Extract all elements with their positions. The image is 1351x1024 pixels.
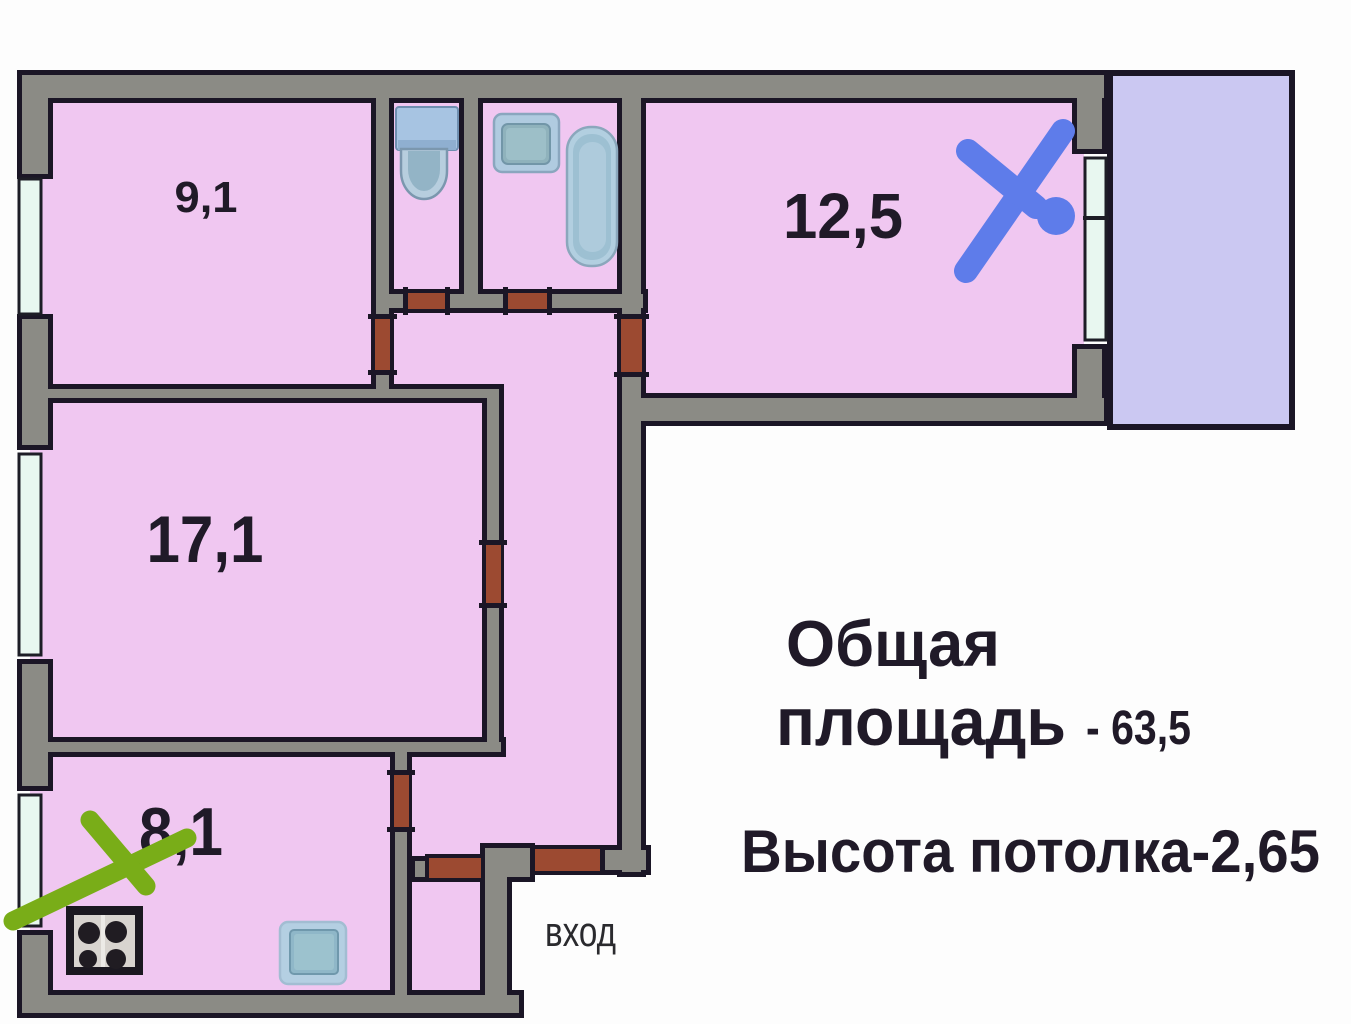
svg-text:площадь: площадь bbox=[776, 684, 1066, 760]
svg-text:Высота потолка-2,65: Высота потолка-2,65 bbox=[741, 818, 1320, 885]
svg-text:вход: вход bbox=[545, 908, 616, 955]
svg-text:17,1: 17,1 bbox=[147, 502, 264, 576]
svg-text:- 63,5: - 63,5 bbox=[1086, 702, 1191, 755]
svg-text:Общая: Общая bbox=[786, 607, 1000, 680]
svg-text:12,5: 12,5 bbox=[783, 180, 903, 252]
svg-text:9,1: 9,1 bbox=[175, 173, 238, 222]
